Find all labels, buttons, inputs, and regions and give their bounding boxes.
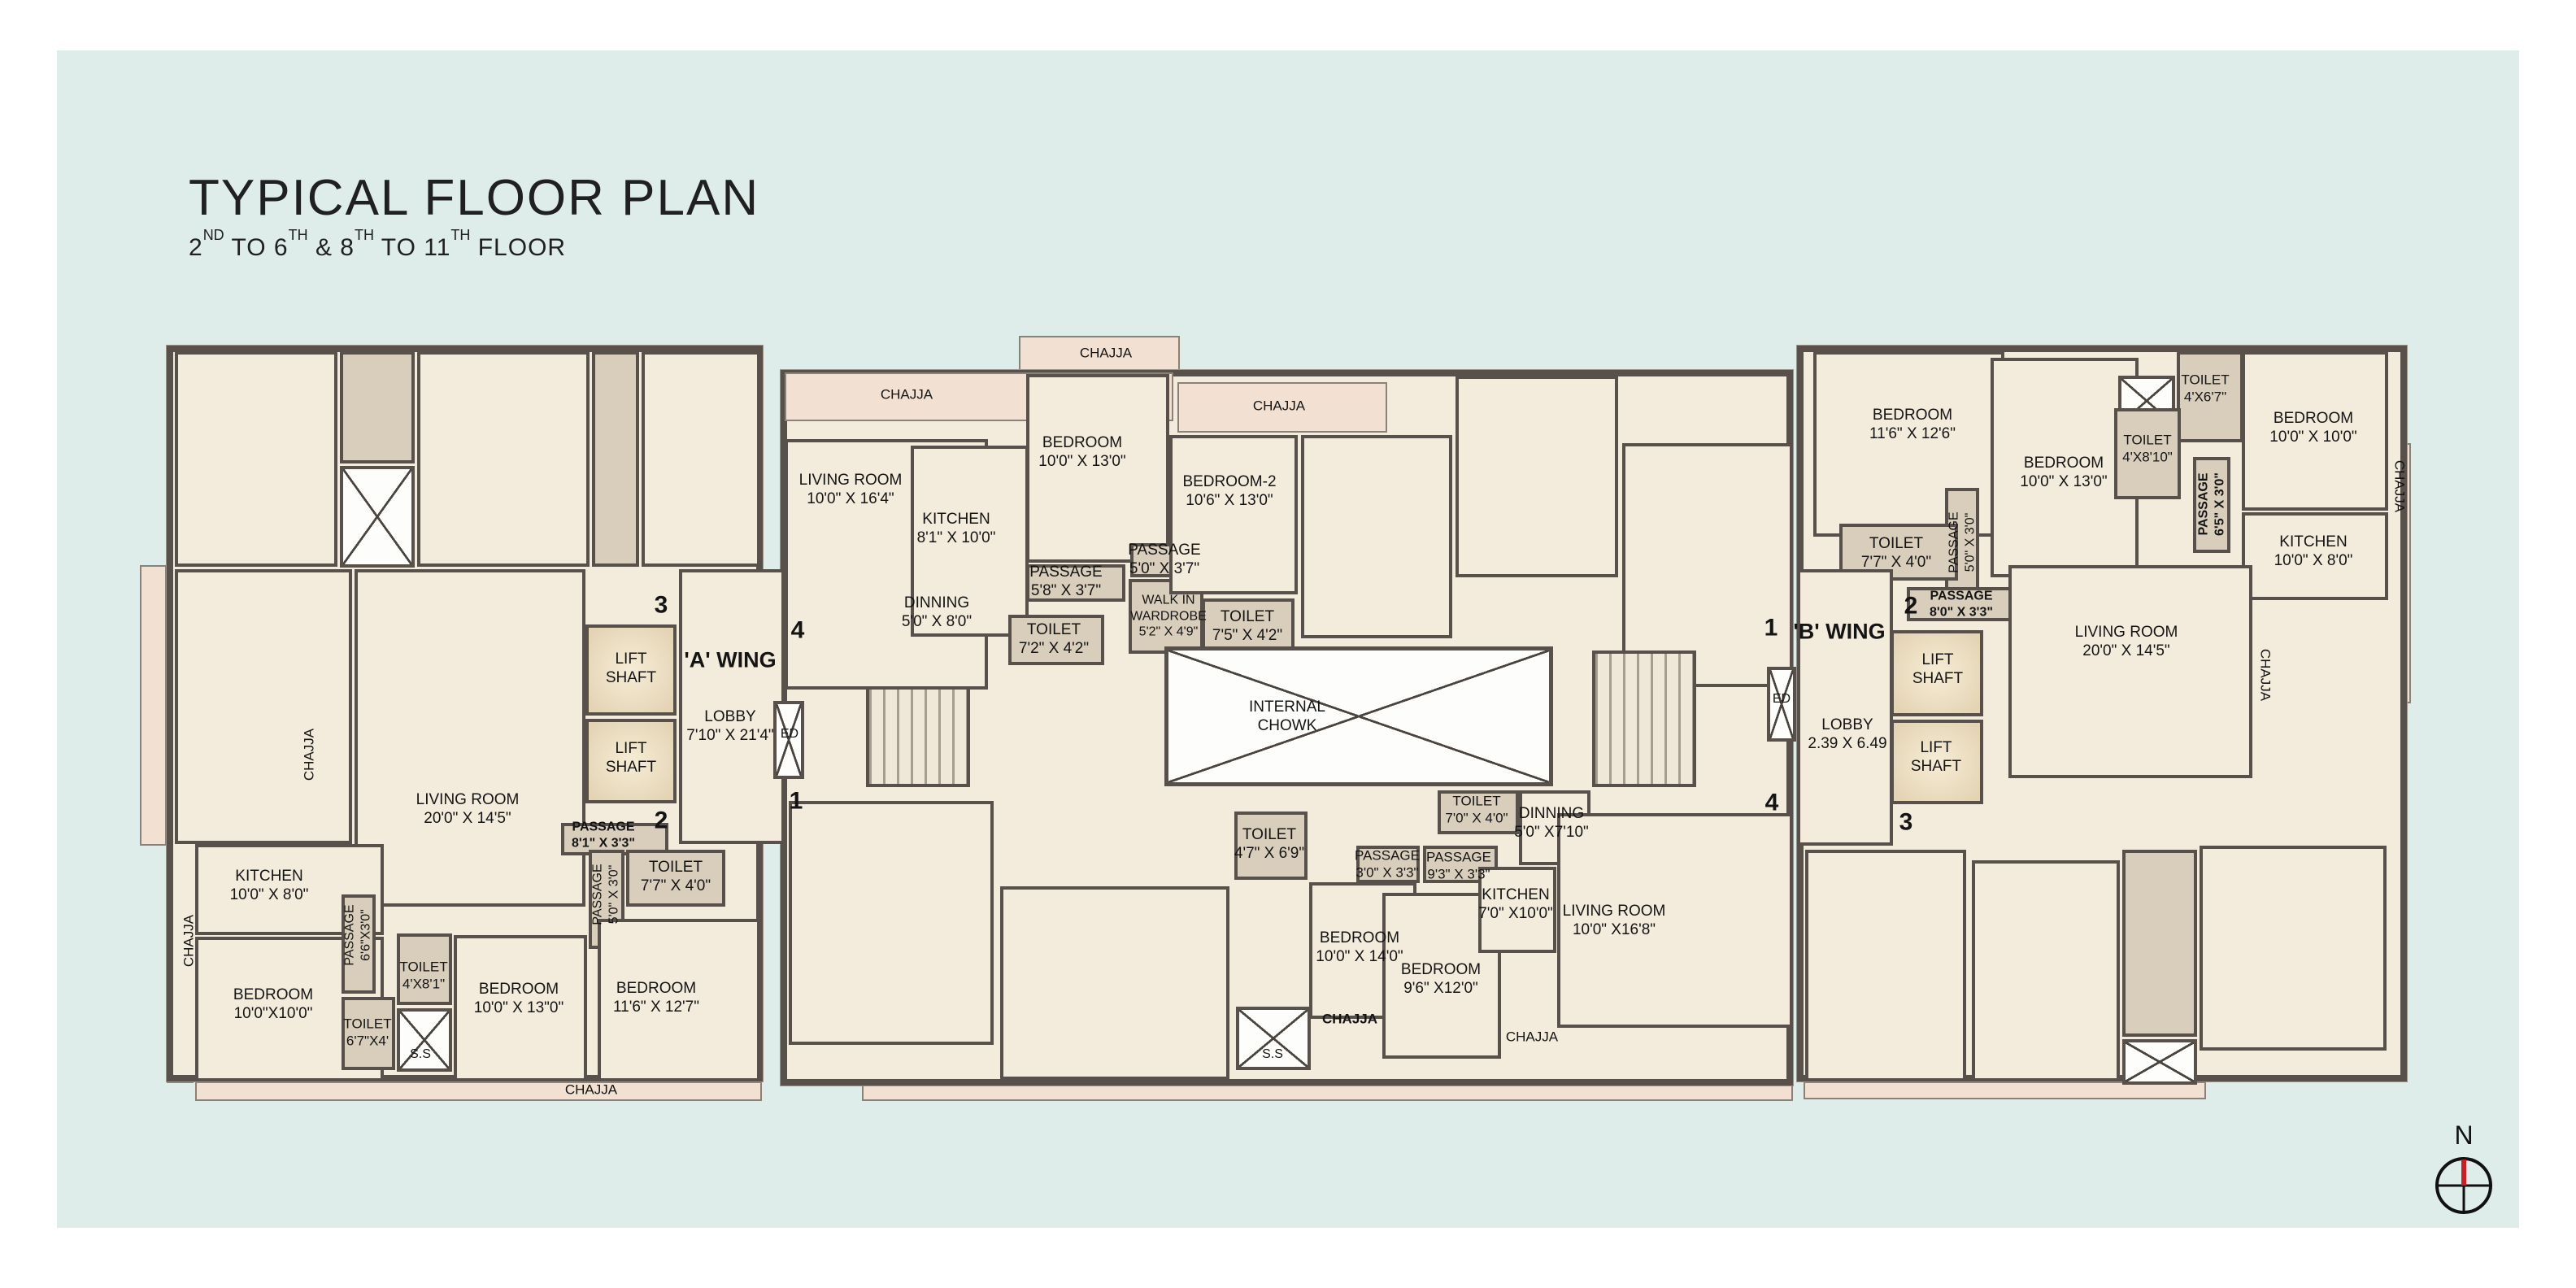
passage-label: PASSAGE5'0" X 3'0" (590, 864, 621, 925)
room-toilet (2122, 850, 2197, 1037)
unit-number-4: 4 (1765, 789, 1779, 819)
kitchen-label: KITCHEN10'0" X 8'0" (230, 867, 309, 904)
chajja-label: CHAJJA (1506, 1029, 1558, 1046)
unit-number-2: 2 (1904, 592, 1918, 622)
room-floor (1000, 886, 1229, 1080)
room-chajja (195, 1081, 762, 1101)
chajja-label: CHAJJA (881, 387, 933, 404)
page-subtitle: 2ND TO 6TH & 8TH TO 11TH FLOOR (189, 233, 759, 262)
subtitle-text: TO 6 (224, 234, 289, 261)
room-stairs (1592, 651, 1696, 787)
compass-icon (2427, 1149, 2500, 1222)
subtitle-text: & 8 (308, 234, 355, 261)
chajja-label: CHAJJA (2256, 649, 2274, 701)
dinning-label: DINNING5'0" X 8'0" (902, 594, 972, 631)
unit-number-4: 4 (791, 616, 805, 646)
subtitle-superscript: TH (289, 227, 308, 243)
page-title: TYPICAL FLOOR PLAN (189, 169, 759, 227)
room-floor (1805, 850, 1966, 1081)
living-room-label: LIVING ROOM20'0" X 14'5" (2075, 623, 2178, 660)
lift-shaft-label: LIFTSHAFT (606, 650, 656, 687)
passage-label: PASSAGE5'0" X 3'7" (1128, 541, 1200, 578)
unit-number-3: 3 (655, 591, 668, 621)
floor-plan-page: { "title": "TYPICAL FLOOR PLAN", "subtit… (0, 0, 2576, 1288)
chajja-label: CHAJJA (181, 915, 198, 967)
unit-number-2: 2 (655, 807, 668, 837)
ed-label: ED (1773, 691, 1791, 707)
passage-label: PASSAGE6'5" X 3'0" (2195, 472, 2227, 536)
room-xbox (2122, 1039, 2197, 1085)
bedroom-label: BEDROOM10'0" X 13'0" (2020, 454, 2107, 491)
room-xbox (340, 466, 415, 568)
toilet-label: TOILET7'2" X 4'2" (1019, 620, 1089, 658)
passage-label: PASSAGE6'6"X3'0" (342, 904, 373, 965)
passage-label: PASSAGE3'0" X 3'3" (1355, 847, 1420, 881)
b-lobby-label: LOBBY2.39 X 6.49 (1808, 716, 1886, 753)
ss-label: S.S (1262, 1046, 1283, 1063)
room-toilet (592, 351, 639, 567)
unit-number-1: 1 (1764, 614, 1778, 644)
kitchen-label: KITCHEN10'0" X 8'0" (2274, 533, 2353, 570)
chajja-label: CHAJJA (2391, 460, 2408, 512)
subtitle-superscript: ND (203, 227, 224, 243)
room-chowk (1164, 646, 1553, 786)
toilet-label: TOILET7'7" X 4'0" (1861, 534, 1931, 572)
b-wing-label: 'B' WING (1793, 619, 1885, 646)
room-toilet (340, 351, 415, 463)
living-room-label: LIVING ROOM10'0" X 16'4" (799, 471, 903, 508)
living-room-label: LIVING ROOM20'0" X 14'5" (416, 790, 520, 828)
room-floor (642, 351, 760, 567)
chajja-label: CHAJJA (1322, 1012, 1377, 1029)
room-floor (1301, 435, 1452, 638)
room-floor (2008, 565, 2252, 778)
toilet-label: TOILET6'7"X4' (343, 1016, 391, 1049)
toilet-label: TOILET4'X8'1" (399, 959, 447, 992)
room-floor (355, 569, 585, 907)
internal-chowk-label: INTERNALCHOWK (1249, 698, 1325, 735)
chajja-label: CHAJJA (1253, 398, 1305, 416)
lift-shaft-label: LIFTSHAFT (606, 739, 656, 777)
ed-label: ED (781, 726, 798, 742)
passage-label: PASSAGE8'0" X 3'3" (1930, 588, 1993, 620)
room-floor (175, 351, 337, 567)
bedroom-label: BEDROOM10'0" X 13'0" (1038, 433, 1125, 471)
passage-label: PASSAGE8'1" X 3'3" (572, 819, 635, 851)
a-lobby-label: LOBBY7'10" X 21'4" (686, 707, 773, 745)
room-floor (417, 351, 590, 567)
bedroom-label: BEDROOM9'6" X12'0" (1401, 960, 1481, 998)
unit-number-3: 3 (1899, 808, 1913, 838)
subtitle-text: FLOOR (470, 234, 566, 261)
toilet-label: TOILET7'5" X 4'2" (1212, 607, 1282, 645)
toilet-label: TOILET4'X8'10" (2122, 432, 2173, 465)
subtitle-superscript: TH (450, 227, 470, 243)
bedroom-label: BEDROOM10'0" X 13"0" (474, 980, 564, 1017)
subtitle-superscript: TH (355, 227, 374, 243)
bedroom-label: BEDROOM10'0"X10'0" (233, 986, 313, 1023)
kitchen-label: KITCHEN7'0" X10'0" (1478, 885, 1553, 923)
title-block: TYPICAL FLOOR PLAN 2ND TO 6TH & 8TH TO 1… (189, 169, 759, 262)
bedroom-label: BEDROOM11'6" X 12'6" (1869, 406, 1956, 443)
room-floor (1456, 376, 1618, 577)
bedroom-label: BEDROOM11'6" X 12'7" (613, 979, 699, 1016)
room-floor (2200, 846, 2387, 1051)
room-floor (175, 569, 352, 844)
lift-shaft-label: LIFTSHAFT (1911, 738, 1961, 776)
room-floor (789, 801, 994, 1045)
room-chajja (862, 1083, 1793, 1101)
lift-shaft-label: LIFTSHAFT (1912, 651, 1963, 688)
subtitle-text: TO 11 (374, 234, 450, 261)
chajja-label: CHAJJA (1080, 346, 1132, 363)
living-room-label: LIVING ROOM10'0" X16'8" (1563, 902, 1666, 939)
room-floor (1972, 860, 2120, 1081)
dinning-label: DINNING5'0" X7'10" (1514, 804, 1589, 842)
compass: N (2427, 1120, 2500, 1226)
chajja-label: CHAJJA (302, 729, 319, 781)
kitchen-label: KITCHEN8'1" X 10'0" (917, 510, 996, 547)
toilet-label: TOILET7'0" X 4'0" (1445, 793, 1508, 826)
passage-label: PASSAGE5'8" X 3'7" (1029, 563, 1102, 600)
room-chajja (140, 565, 167, 846)
compass-north-label: N (2427, 1120, 2500, 1151)
toilet-label: TOILET7'7" X 4'0" (641, 858, 711, 895)
room-floor (1797, 569, 1893, 846)
toilet-label: TOILET4'X6'7" (2181, 372, 2229, 405)
bedroom-label: BEDROOM10'0" X 14'0" (1316, 929, 1403, 966)
unit-number-1: 1 (790, 787, 803, 817)
walk-in-wardrobe-label: WALK INWARDROBE5'2" X 4'9" (1130, 593, 1207, 641)
ss-label: S.S (410, 1046, 431, 1063)
passage-label: PASSAGE9'3" X 3'3" (1426, 849, 1491, 882)
toilet-label: TOILET4'7" X 6'9" (1234, 825, 1304, 863)
bedroom-2-label: BEDROOM-210'6" X 13'0" (1182, 472, 1276, 510)
chajja-label: CHAJJA (565, 1082, 617, 1099)
passage-label: PASSAGE5'0" X 3'0" (1946, 511, 1978, 572)
subtitle-text: 2 (189, 234, 203, 261)
bedroom-label: BEDROOM10'0" X 10'0" (2269, 409, 2356, 446)
a-wing-label: 'A' WING (684, 647, 776, 674)
